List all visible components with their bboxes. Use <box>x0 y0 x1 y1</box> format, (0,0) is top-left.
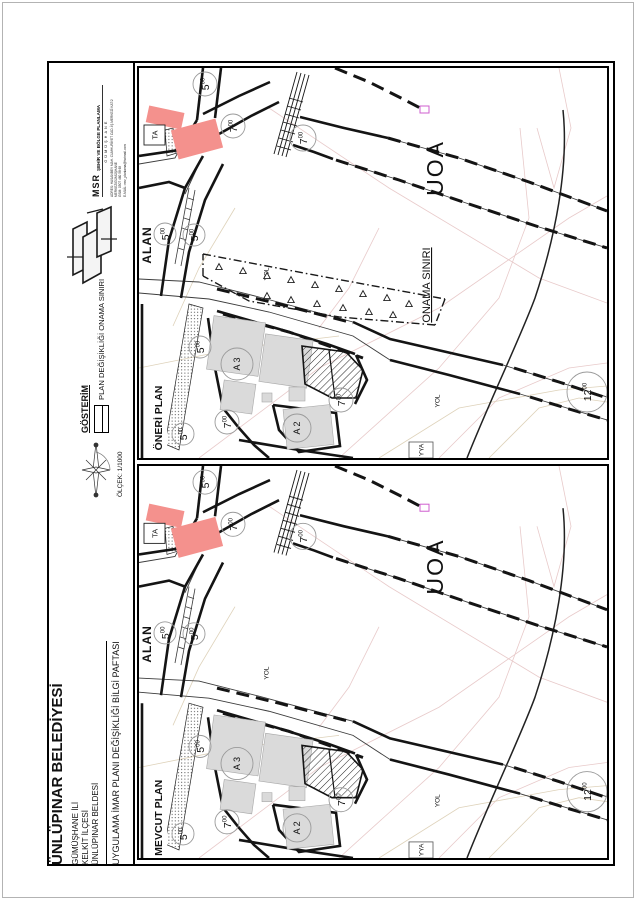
plan-map: TA YYA A 3 A 2 500 500 500 500 500 700 7… <box>139 466 607 858</box>
scale-label: ÖLÇEK: 1/1000 <box>117 441 129 497</box>
svg-text:500: 500 <box>195 739 207 752</box>
a2-label: A 2 <box>292 821 302 834</box>
stream-line <box>467 508 564 858</box>
width-dim-5: 500 <box>193 72 217 96</box>
svg-text:500: 500 <box>195 340 207 353</box>
ta-label: TA <box>151 130 160 139</box>
municipality-name: ÜNLÜPINAR BELEDİYESİ <box>49 641 66 865</box>
width-dim-5: 500 <box>183 224 205 246</box>
svg-text:700: 700 <box>228 517 240 530</box>
stippled-strips <box>165 128 203 450</box>
legend-block: GÖSTERİM PLAN DEĞİŞİKLİĞİ ONAMA SINIRI <box>80 283 126 433</box>
approval-boundary-label: ONAMA SINIRI <box>421 247 433 322</box>
width-dim-12: 1200 <box>567 772 607 812</box>
width-dim-12: 1200 <box>567 372 607 412</box>
svg-text:500: 500 <box>189 627 201 640</box>
town-label: ÜNLÜPINAR BELDESİ <box>91 641 101 865</box>
plan-map: TA YYA A 3 A 2 500 500 500 500 500 700 7… <box>139 68 607 458</box>
ta-parcel: TA <box>144 125 165 145</box>
firm-abbr: MSR <box>91 174 101 197</box>
width-dim-7: 700 <box>221 512 245 536</box>
width-dim-5: 500 <box>183 623 205 645</box>
svg-text:500: 500 <box>178 827 190 840</box>
firm-logo-icon <box>63 199 121 291</box>
legend-item-label: PLAN DEĞİŞİKLİĞİ ONAMA SINIRI <box>97 279 106 400</box>
yya-label: YYA <box>419 443 426 456</box>
svg-text:700: 700 <box>298 131 310 144</box>
yol-label-2: YOL <box>435 794 442 807</box>
a3-label: A 3 <box>232 757 242 770</box>
plan-sheet: MSR ŞEHİR VE BÖLGE PLANLAMA GÜMÜŞHANE AD… <box>0 0 636 900</box>
boundary-marker <box>420 106 429 113</box>
sheet-frame: MSR ŞEHİR VE BÖLGE PLANLAMA GÜMÜŞHANE AD… <box>47 61 615 866</box>
map-panel-existing: TA YYA A 3 A 2 500 500 500 500 500 700 7… <box>137 464 609 860</box>
a2-label: A 2 <box>292 421 302 434</box>
map-panel-proposed: TA YYA A 3 A 2 500 500 500 500 500 700 7… <box>137 66 609 460</box>
yya-label: YYA <box>419 843 426 856</box>
stairs <box>175 188 195 266</box>
boundary-triangles <box>216 264 413 318</box>
firm-block: MSR ŞEHİR VE BÖLGE PLANLAMA GÜMÜŞHANE AD… <box>91 85 133 197</box>
yya-parcel: YYA <box>409 442 433 458</box>
column-divider <box>133 63 135 864</box>
svg-text:500: 500 <box>200 475 212 488</box>
province-label: GÜMÜŞHANE İLİ <box>71 641 81 865</box>
north-arrow-icon <box>79 441 113 499</box>
firm-email: E-MAİL: msr_planlama@hotmail.com <box>123 85 127 197</box>
legend-heading: GÖSTERİM <box>80 283 90 433</box>
area-label: ALAN <box>140 625 154 662</box>
firm-address: ADRES: HASANBEY MAH. CUMHURİYET CAD. İŞ … <box>110 85 118 197</box>
width-dim-5: 500 <box>154 622 176 644</box>
width-dim-5: 500 <box>154 223 176 245</box>
stream-line <box>467 110 564 458</box>
municipality-block: ÜNLÜPINAR BELEDİYESİ GÜMÜŞHANE İLİ KELKİ… <box>49 641 135 865</box>
a3-label: A 3 <box>232 357 242 370</box>
svg-text:700: 700 <box>228 119 240 132</box>
zone-label-uoa: UOA <box>422 140 448 196</box>
sheet-title: UYGULAMA İMAR PLANI DEĞİŞİKLİĞİ BİLGİ PA… <box>111 641 121 865</box>
yol-label-1: YOL <box>264 666 271 679</box>
yya-parcel: YYA <box>409 842 433 858</box>
stippled-strips <box>165 526 203 850</box>
firm-subtitle: GÜMÜŞHANE <box>104 85 108 197</box>
zone-label-uoa: UOA <box>422 538 448 594</box>
boundary-marker <box>420 504 429 511</box>
approval-boundary-wedge: ONAMA SINIRI <box>203 247 445 325</box>
yol-label-2: YOL <box>435 394 442 407</box>
ta-label: TA <box>151 529 160 538</box>
svg-text:1200: 1200 <box>582 782 594 801</box>
title-divider <box>106 641 107 865</box>
approval-boundary-legend-icon <box>94 405 109 433</box>
svg-text:1200: 1200 <box>582 382 594 401</box>
stairs <box>175 587 195 665</box>
svg-text:500: 500 <box>178 427 190 440</box>
svg-text:500: 500 <box>189 228 201 241</box>
svg-text:500: 500 <box>200 77 212 90</box>
width-dim-5: 500 <box>193 470 217 494</box>
ta-parcel: TA <box>144 523 165 543</box>
width-dim-7: 700 <box>221 114 245 138</box>
svg-text:700: 700 <box>222 415 234 428</box>
panel-label: MEVCUT PLAN <box>153 780 165 856</box>
svg-text:700: 700 <box>298 529 310 542</box>
firm-name: ŞEHİR VE BÖLGE PLANLAMA <box>96 105 101 171</box>
area-label: ALAN <box>140 226 154 263</box>
svg-text:700: 700 <box>222 815 234 828</box>
district-label: KELKİT İLÇESİ <box>81 641 91 865</box>
panel-label: ÖNERİ PLAN <box>152 386 165 451</box>
